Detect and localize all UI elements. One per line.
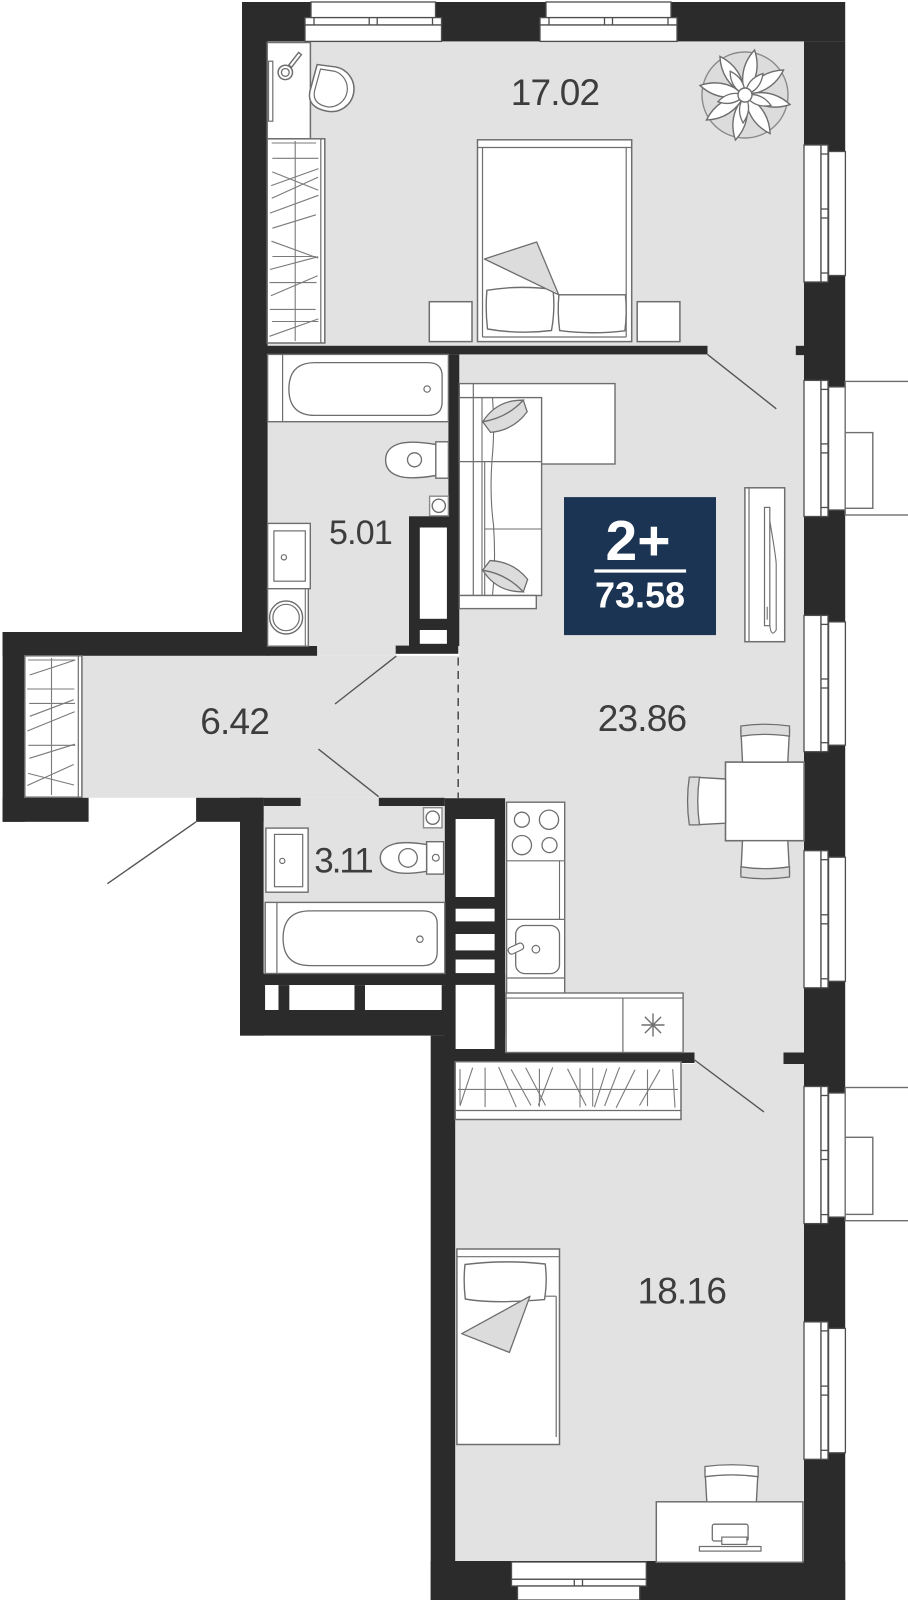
- svg-text:3.11: 3.11: [314, 842, 372, 881]
- svg-text:17.02: 17.02: [511, 72, 600, 113]
- svg-text:23.86: 23.86: [598, 698, 687, 739]
- svg-text:73.58: 73.58: [595, 575, 685, 616]
- svg-text:6.42: 6.42: [200, 701, 269, 742]
- svg-text:2+: 2+: [606, 509, 671, 573]
- svg-text:18.16: 18.16: [638, 1271, 727, 1312]
- svg-text:5.01: 5.01: [329, 514, 392, 552]
